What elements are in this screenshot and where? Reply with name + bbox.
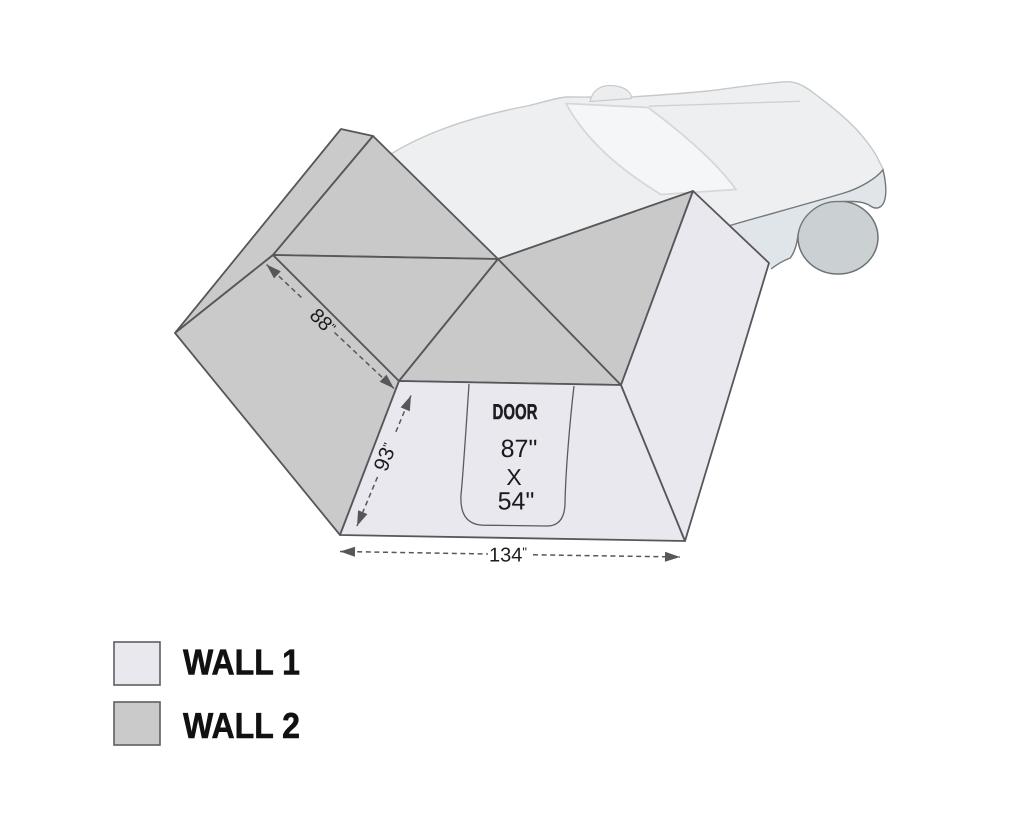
svg-text:DOOR: DOOR [493,400,538,424]
svg-text:87": 87" [501,435,538,463]
svg-text:54": 54" [498,488,535,516]
svg-text:X: X [506,464,521,490]
svg-text:WALL 1: WALL 1 [183,642,300,683]
svg-text:134": 134" [489,545,527,567]
svg-text:WALL 2: WALL 2 [183,705,300,746]
